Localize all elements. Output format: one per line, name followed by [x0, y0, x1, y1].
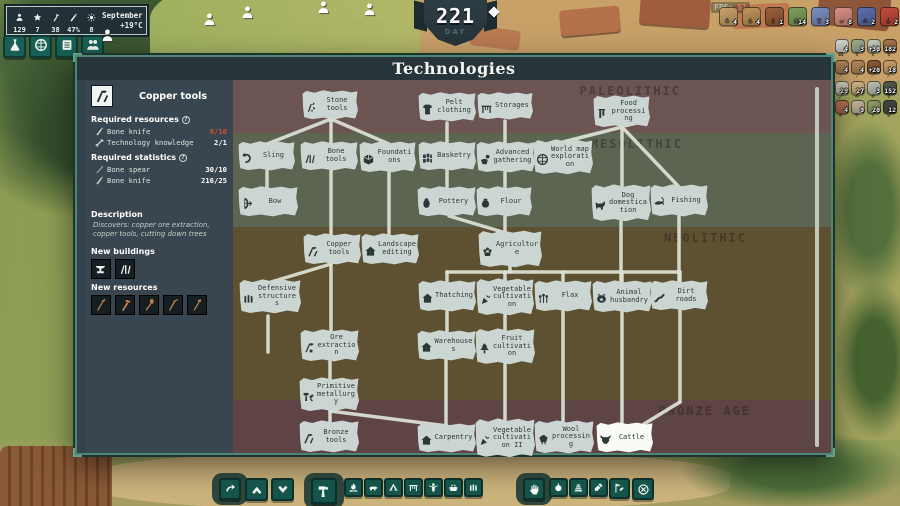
- resource-eggs[interactable]: 27: [851, 81, 865, 95]
- tech-node-label: Bronze tools: [316, 429, 356, 444]
- villager-marker: [240, 5, 255, 20]
- tech-node-advanced-gathering[interactable]: Advanced gathering: [476, 141, 535, 173]
- bone-tools-icon: [115, 259, 135, 279]
- tech-node-label: Agriculture: [495, 241, 539, 256]
- resource-count: 182: [884, 45, 896, 53]
- pig-icon: [595, 290, 608, 303]
- required-resource-row: Technology knowledge2/1: [91, 137, 227, 148]
- roof: [559, 5, 621, 36]
- star-icon: [33, 7, 42, 26]
- quick-button-world[interactable]: [29, 35, 52, 58]
- tech-node-bronze-tools[interactable]: Bronze tools: [299, 420, 359, 453]
- sack-icon: [479, 195, 492, 208]
- resource-count: 4: [844, 106, 848, 114]
- resource-meat[interactable]: 4: [835, 100, 849, 114]
- tech-node-pelt-clothing[interactable]: Pelt clothing: [418, 92, 476, 122]
- resource-count: 4: [844, 66, 848, 74]
- flax-icon: [537, 290, 550, 303]
- roof: [639, 0, 711, 28]
- toolbar-button-harvest[interactable]: [549, 478, 568, 497]
- required-statistic-row: Bone knife216/25: [91, 175, 227, 186]
- requirement-name: Bone knife: [107, 176, 150, 185]
- tech-node-label: Fishing: [667, 197, 705, 205]
- tech-node-label: Carpentry: [434, 434, 473, 442]
- bone-tools-icon: [303, 150, 316, 163]
- resource-count: 1: [779, 18, 783, 26]
- tech-node-label: Ore extraction: [317, 334, 356, 357]
- resource-count: 2: [894, 18, 898, 26]
- flask-icon: [8, 37, 22, 56]
- hud-stats-box: 12973847%8 September +19°C: [6, 6, 147, 35]
- tech-node-label: Wool processing: [551, 426, 591, 449]
- requirement-name: Technology knowledge: [107, 138, 194, 147]
- selected-tech-icon: [91, 85, 113, 107]
- resource-count: 12: [888, 106, 896, 114]
- tech-node-bow[interactable]: Bow: [238, 186, 298, 217]
- toolbar-button-palisade[interactable]: [464, 478, 483, 497]
- chev-up-icon: [247, 480, 266, 499]
- required-resource-row: Bone knife8/10: [91, 126, 227, 137]
- house-icon: [420, 339, 433, 352]
- road-icon: [653, 289, 666, 302]
- globe-icon: [536, 151, 549, 164]
- tech-node-label: Bone tools: [317, 148, 355, 163]
- tech-node-ore-extraction[interactable]: Ore extraction: [300, 329, 359, 362]
- tools-icon: [302, 430, 315, 443]
- bone-icon: [95, 138, 104, 147]
- tech-node-thatching[interactable]: Thatching: [418, 280, 476, 312]
- toolbar-button-lower-terrain[interactable]: [271, 478, 294, 501]
- required-statistic-row: Bone spear30/10: [91, 164, 227, 175]
- circle-x-icon: [634, 480, 652, 498]
- resource-hide[interactable]: 9: [851, 100, 865, 114]
- required-resources-label: Required resources: [91, 115, 179, 124]
- trees-right-edge-2: [835, 280, 900, 440]
- toolbar-button-idol[interactable]: [424, 478, 443, 497]
- resource-spear[interactable]: +20: [867, 60, 881, 74]
- tech-node-foundations[interactable]: Foundations: [359, 141, 416, 173]
- resource-basket[interactable]: 14: [788, 7, 807, 26]
- trees-right-edge: [825, 120, 900, 300]
- requirement-value: 30/10: [205, 165, 227, 174]
- tech-node-defensive-structures[interactable]: Defensive structures: [239, 279, 301, 314]
- knife-icon: [69, 7, 78, 26]
- stone-tools-icon: [305, 99, 318, 112]
- resource-crate[interactable]: 4: [835, 39, 849, 53]
- villager-marker: [100, 28, 115, 43]
- requirement-value: 8/10: [210, 127, 227, 136]
- tech-node-label: Animal husbandry: [609, 289, 649, 304]
- toolbar-button-drying-rack[interactable]: [404, 478, 423, 497]
- tech-node-food-processing[interactable]: Food processing: [593, 95, 650, 128]
- panel-corner: [826, 448, 835, 457]
- tech-node-dirt-roads[interactable]: Dirt roads: [650, 280, 708, 311]
- ore-icon: [303, 339, 316, 352]
- tech-node-label: Thatching: [435, 292, 473, 300]
- resource-berries[interactable]: 2: [857, 7, 876, 26]
- tech-node-copper-tools[interactable]: Copper tools: [303, 233, 361, 265]
- resource-stone[interactable]: 3: [867, 81, 881, 95]
- panel-corner: [73, 448, 82, 457]
- requirement-name: Bone spear: [107, 165, 150, 174]
- knife-icon: [95, 127, 104, 136]
- resource-tunic[interactable]: 3: [851, 39, 865, 53]
- panel-corner: [73, 53, 82, 62]
- hoe-icon: [187, 295, 207, 315]
- tech-node-label: Fruit cultivation: [492, 335, 532, 358]
- requirement-name: Bone knife: [107, 127, 150, 136]
- carrot-icon: [478, 432, 491, 445]
- chev-down-icon: [273, 480, 292, 499]
- tech-node-label: Landscape editing: [378, 241, 416, 256]
- toolbar-button-orders[interactable]: [523, 478, 545, 500]
- bow-icon: [241, 195, 254, 208]
- tech-details-sidebar: Copper tools Required resources? Bone kn…: [85, 80, 233, 453]
- palisade-bottom-left: [0, 446, 112, 506]
- hud-stat-knife: 47%: [65, 7, 82, 34]
- tech-node-animal-husbandry[interactable]: Animal husbandry: [592, 280, 652, 313]
- tech-node-storages[interactable]: Storages: [477, 92, 533, 120]
- pot-icon: [420, 195, 433, 208]
- campfire-icon: [346, 480, 361, 495]
- toolbar-button-build[interactable]: [311, 478, 337, 504]
- tent-icon: [386, 480, 401, 495]
- resource-count: 9: [860, 106, 864, 114]
- help-icon[interactable]: ?: [182, 116, 190, 124]
- hud-stat-value: 129: [13, 27, 26, 34]
- resource-pants[interactable]: 152: [883, 81, 897, 95]
- tech-node-primitive-metallurgy[interactable]: Primitive metallurgy: [299, 377, 359, 412]
- idol-icon: [426, 480, 441, 495]
- resource-count: +30: [868, 45, 880, 53]
- resource-count: 3: [825, 18, 829, 26]
- panel-corner: [826, 53, 835, 62]
- new-resources-label: New resources: [91, 283, 158, 292]
- tech-node-label: Pottery: [434, 198, 473, 206]
- tech-node-warehouses[interactable]: Warehouses: [417, 330, 476, 361]
- flagpick-icon: [611, 480, 628, 497]
- anvil-icon: [91, 259, 111, 279]
- tech-node-world-map-exploration[interactable]: World map exploration: [533, 139, 593, 175]
- selected-tech-name: Copper tools: [119, 91, 227, 102]
- tech-node-carpentry[interactable]: Carpentry: [417, 423, 476, 453]
- adze-icon: [91, 295, 111, 315]
- tech-node-label: Basketry: [435, 152, 473, 160]
- toolbar-button-claim[interactable]: [609, 478, 630, 499]
- resource-count: 29: [840, 87, 848, 95]
- tech-node-label: Flax: [551, 292, 589, 300]
- tech-node-label: Dirt roads: [667, 288, 705, 303]
- tech-node-flour[interactable]: Flour: [476, 186, 532, 217]
- tools-icon: [306, 243, 319, 256]
- tech-node-label: Storages: [494, 102, 530, 110]
- carrot-icon: [479, 291, 492, 304]
- tech-description: Discovers: copper ore extraction, copper…: [91, 221, 227, 239]
- resource-count: 2: [871, 18, 875, 26]
- spade-icon: [139, 295, 159, 315]
- person-icon: [15, 7, 24, 26]
- tech-node-label: Vegetable cultivation: [493, 286, 531, 309]
- scroll-icon: [60, 37, 74, 56]
- resource-axe[interactable]: 4: [851, 60, 865, 74]
- hands-icon: [446, 480, 461, 495]
- resource-jug[interactable]: 1: [765, 7, 784, 26]
- boar-icon: [366, 480, 381, 495]
- tech-node-basketry[interactable]: Basketry: [418, 141, 476, 171]
- resource-pickaxe[interactable]: 4: [835, 60, 849, 74]
- resource-count: 20: [872, 106, 880, 114]
- villager-marker: [362, 2, 377, 17]
- tech-node-label: World map exploration: [550, 146, 590, 169]
- tech-node-label: Dog domestication: [608, 192, 648, 215]
- cow-icon: [599, 431, 612, 444]
- resource-count: 18: [888, 66, 896, 74]
- hammer-icon: [313, 480, 335, 502]
- axe-icon: [51, 7, 60, 26]
- resource-count: 14: [798, 18, 806, 26]
- tech-node-label: Bow: [255, 198, 295, 206]
- onion-icon: [551, 480, 566, 495]
- hud-stat-value: 38: [51, 27, 59, 34]
- rotate-icon: [221, 480, 239, 498]
- hud-stat-value: 7: [35, 27, 39, 34]
- tech-node-agriculture[interactable]: Agriculture: [478, 230, 542, 268]
- day-value: 221: [424, 6, 487, 26]
- tech-node-label: Warehouses: [434, 338, 473, 353]
- villager-marker: [316, 0, 331, 15]
- tree-scrollbar[interactable]: [815, 87, 819, 447]
- resource-count: 4: [733, 18, 737, 26]
- house-icon: [420, 432, 433, 445]
- resource-coal[interactable]: 12: [883, 100, 897, 114]
- tech-node-pottery[interactable]: Pottery: [417, 186, 476, 217]
- resource-count: 8: [848, 18, 852, 26]
- tech-node-label: Foundations: [376, 149, 413, 164]
- toolbar-button-raise-terrain[interactable]: [245, 478, 268, 501]
- hud-stat-sun: 8: [83, 7, 100, 34]
- spear-icon: [95, 165, 104, 174]
- tech-node-label: Primitive metallurgy: [316, 383, 356, 406]
- rack-icon: [406, 480, 421, 495]
- pales-icon: [466, 480, 481, 495]
- resource-cloth[interactable]: 3: [811, 7, 830, 26]
- people-icon: [86, 37, 100, 56]
- globe-icon: [34, 37, 48, 56]
- season-label: September: [102, 11, 143, 20]
- tech-node-sling[interactable]: Sling: [238, 141, 295, 171]
- era-label: BRONZE AGE: [659, 404, 751, 418]
- house-icon: [364, 243, 377, 256]
- hand-berry-icon: [479, 151, 492, 164]
- hud-stat-value: 47%: [67, 27, 80, 34]
- tech-node-label: Vegetable cultivation II: [492, 427, 532, 450]
- weave-icon: [421, 150, 434, 163]
- tech-node-wool-processing[interactable]: Wool processing: [534, 420, 594, 454]
- era-label: PALEOLITHIC: [580, 84, 681, 98]
- tech-node-bone-tools[interactable]: Bone tools: [300, 141, 358, 171]
- villager-marker: [202, 12, 217, 27]
- toolbar-button-tent[interactable]: [384, 478, 403, 497]
- resource-tunic[interactable]: 182: [883, 39, 897, 53]
- tech-node-cattle[interactable]: Cattle: [596, 422, 653, 453]
- tech-node-label: Food processing: [610, 100, 647, 123]
- hud-stat-person: 129: [11, 7, 28, 34]
- pales-icon: [242, 290, 255, 303]
- house-icon: [421, 290, 434, 303]
- tech-node-label: Advanced gathering: [493, 149, 532, 164]
- resource-bone[interactable]: 29: [835, 81, 849, 95]
- tree-icon: [478, 340, 491, 353]
- resource-apple[interactable]: 2: [880, 7, 899, 26]
- toolbar-button-stockpile[interactable]: [569, 478, 588, 497]
- era-label: NEOLITHIC: [664, 231, 747, 245]
- axe-icon: [115, 295, 135, 315]
- new-buildings-label: New buildings: [91, 247, 155, 256]
- resource-herb[interactable]: 20: [867, 100, 881, 114]
- fish-icon: [653, 194, 666, 207]
- tech-node-label: Defensive structures: [256, 285, 298, 308]
- toolbar-button-gathering-spot[interactable]: [444, 478, 463, 497]
- help-icon[interactable]: ?: [179, 154, 187, 162]
- pickaxe-icon: [163, 295, 183, 315]
- resource-count: 4: [860, 66, 864, 74]
- layers-icon: [571, 480, 586, 495]
- tech-node-label: Flour: [493, 198, 529, 206]
- description-label: Description: [91, 210, 143, 219]
- sling-icon: [241, 150, 254, 163]
- tech-node-fruit-cultivation[interactable]: Fruit cultivation: [475, 328, 535, 365]
- resource-knife[interactable]: 18: [883, 60, 897, 74]
- resource-count: 4: [756, 18, 760, 26]
- tech-node-label: Copper tools: [320, 241, 358, 256]
- resource-pouch[interactable]: 4: [719, 7, 738, 26]
- required-statistics-label: Required statistics: [91, 153, 176, 162]
- toolbar-button-livestock[interactable]: [364, 478, 383, 497]
- tech-node-label: Sling: [255, 152, 292, 160]
- knife-icon: [95, 176, 104, 185]
- tech-node-label: Stone tools: [319, 97, 355, 112]
- era-label: MESOLITHIC: [591, 137, 683, 151]
- shovel-icon: [591, 480, 606, 495]
- toolbar-button-campfire[interactable]: [344, 478, 363, 497]
- tech-node-dog-domestication[interactable]: Dog domestication: [591, 184, 651, 222]
- toolbar-button-rotate[interactable]: [219, 478, 241, 500]
- resource-sack[interactable]: 4: [742, 7, 761, 26]
- resource-count: 27: [856, 87, 864, 95]
- hud-stat-axe: 38: [47, 7, 64, 34]
- hud-stat-star: 7: [29, 7, 46, 34]
- hand-icon: [525, 480, 543, 498]
- tech-node-vegetable-cultivation[interactable]: Vegetable cultivation: [476, 278, 534, 316]
- toolbar-button-cancel[interactable]: [632, 478, 654, 500]
- panel-title: Technologies: [77, 57, 831, 80]
- tech-node-fishing[interactable]: Fishing: [650, 184, 708, 217]
- cube-icon: [362, 151, 375, 164]
- resource-count: +20: [868, 66, 880, 74]
- tech-node-stone-tools[interactable]: Stone tools: [302, 90, 358, 120]
- tech-node-vegetable-cultivation-ii[interactable]: Vegetable cultivation II: [475, 418, 535, 458]
- tech-node-flax[interactable]: Flax: [534, 280, 592, 312]
- resource-count: 3: [860, 45, 864, 53]
- hud-stat-value: 8: [89, 27, 93, 34]
- resource-tunic[interactable]: +30: [867, 39, 881, 53]
- resource-count: 152: [884, 87, 896, 95]
- quick-button-science[interactable]: [3, 35, 26, 58]
- requirement-value: 2/1: [214, 138, 227, 147]
- sheaf-icon: [481, 243, 494, 256]
- resource-meat[interactable]: 8: [834, 7, 853, 26]
- wool-icon: [537, 431, 550, 444]
- rack-icon: [480, 100, 493, 113]
- toolbar-button-dig[interactable]: [589, 478, 608, 497]
- tech-node-landscape-editing[interactable]: Landscape editing: [361, 233, 419, 265]
- tech-node-label: Pelt clothing: [435, 99, 473, 114]
- pelt-icon: [421, 101, 434, 114]
- dog-icon: [594, 197, 607, 210]
- hammers-icon: [302, 388, 315, 401]
- food-processing-icon: [596, 105, 609, 118]
- resource-count: 4: [844, 45, 848, 53]
- requirement-value: 216/25: [201, 176, 227, 185]
- tech-node-label: Cattle: [613, 434, 650, 442]
- sun-icon: [87, 7, 96, 26]
- resource-count: 3: [876, 87, 880, 95]
